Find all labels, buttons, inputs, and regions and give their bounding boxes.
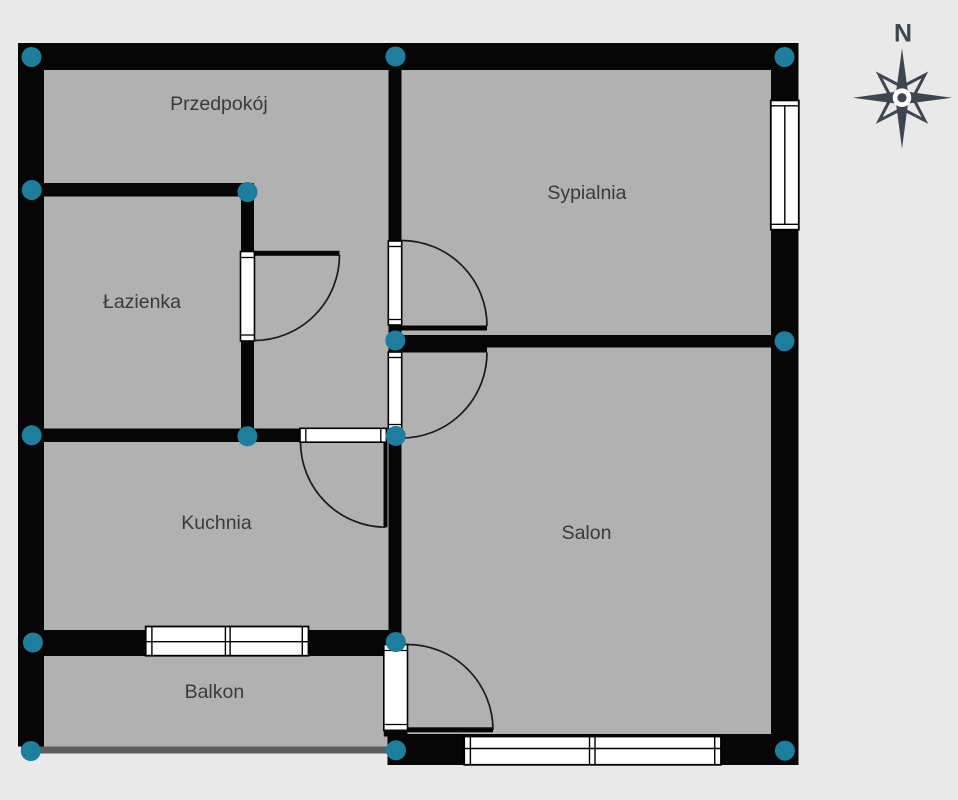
svg-text:Przedpokój: Przedpokój xyxy=(170,93,268,115)
svg-text:Salon: Salon xyxy=(562,522,612,544)
svg-text:Łazienka: Łazienka xyxy=(103,291,181,313)
svg-text:Sypialnia: Sypialnia xyxy=(547,182,626,204)
svg-text:Kuchnia: Kuchnia xyxy=(181,512,252,534)
svg-text:Balkon: Balkon xyxy=(185,681,245,703)
svg-text:N: N xyxy=(894,20,912,48)
